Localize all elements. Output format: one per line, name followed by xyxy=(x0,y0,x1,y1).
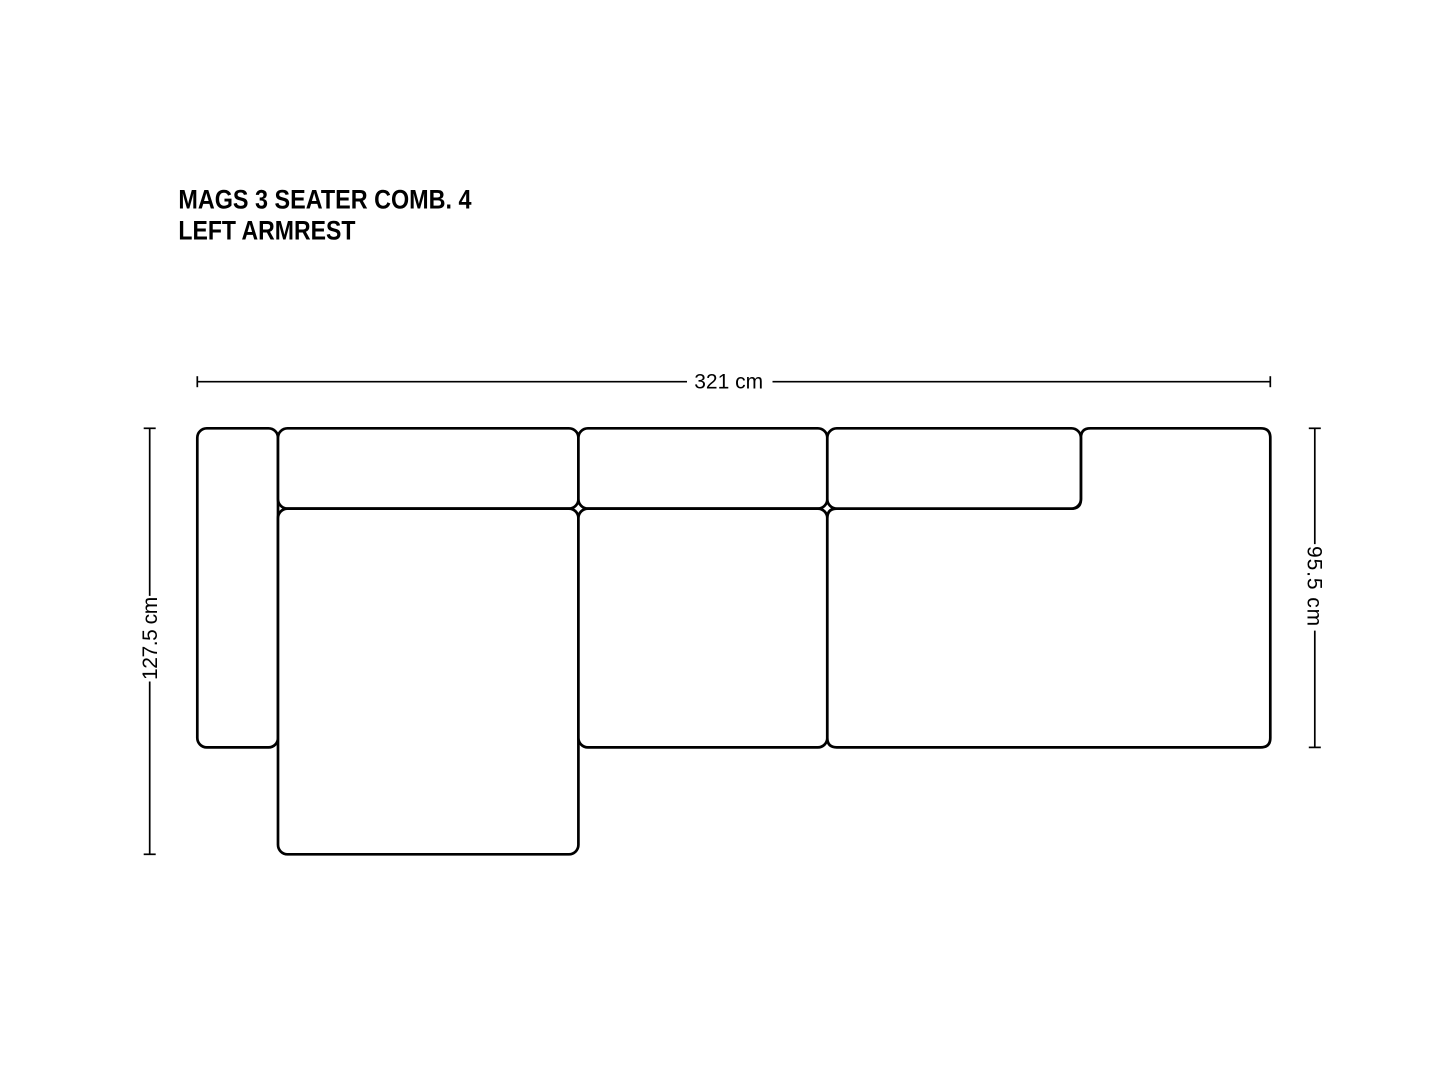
svg-text:321 cm: 321 cm xyxy=(694,370,763,393)
svg-text:LEFT ARMREST: LEFT ARMREST xyxy=(178,215,356,245)
svg-text:MAGS 3 SEATER COMB. 4: MAGS 3 SEATER COMB. 4 xyxy=(178,185,471,215)
svg-text:95.5 cm: 95.5 cm xyxy=(1303,546,1326,627)
svg-text:127.5 cm: 127.5 cm xyxy=(139,597,162,680)
